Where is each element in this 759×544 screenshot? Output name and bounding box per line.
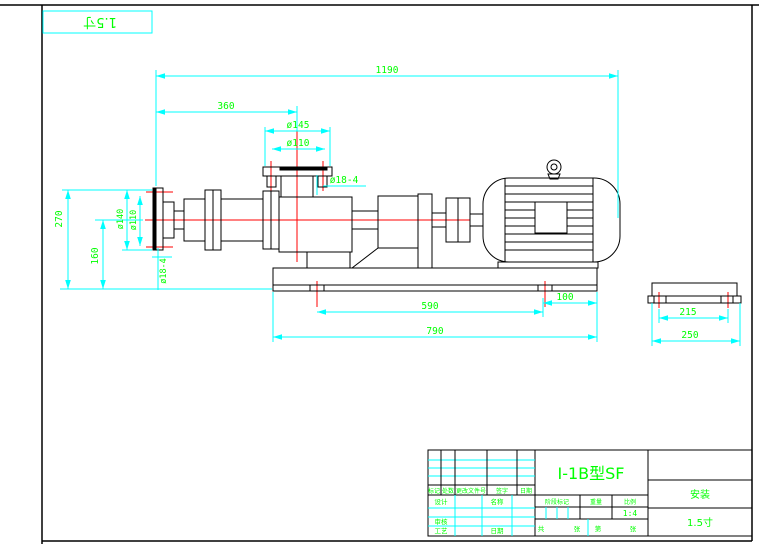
centerlines xyxy=(145,130,728,308)
base-end-view xyxy=(648,283,741,303)
label-design: 设计 xyxy=(435,497,449,506)
dim-anchor-bolt-span: 590 xyxy=(421,301,438,312)
motor-terminal-box xyxy=(535,202,567,233)
rev-header-mark: 标记 xyxy=(428,487,440,495)
bracket-support-plate xyxy=(418,194,432,268)
rev-header-count: 处数 xyxy=(442,487,454,495)
dim-axis-height: 160 xyxy=(90,247,101,264)
drawing-sheet: 1.5寸 xyxy=(0,0,759,544)
revision-table: 标记 处数 更改文件号 签字 日期 xyxy=(428,450,535,495)
dim-total-length: 1190 xyxy=(376,65,399,76)
corner-label: 1.5寸 xyxy=(83,14,117,29)
motor-eyebolt-icon xyxy=(547,160,561,179)
inlet-flange-face xyxy=(153,188,156,250)
label-pages: 张 xyxy=(630,524,637,533)
dim-anchor-bolt-width: 215 xyxy=(679,307,696,318)
dimension-lines xyxy=(60,70,740,346)
label-total: 共 xyxy=(538,524,545,533)
label-sheets: 张 xyxy=(574,524,581,533)
dim-base-overhang: 100 xyxy=(556,292,573,303)
dim-base-width: 250 xyxy=(681,330,698,341)
dim-outlet-flange-od: ø145 xyxy=(287,120,310,131)
title-right-column: 安装 1.5寸 xyxy=(648,480,752,529)
pump-casing xyxy=(279,197,352,252)
outlet-flange-face xyxy=(280,167,327,170)
dim-inlet-flange-od: ø140 xyxy=(116,209,126,229)
scale-value: 1:4 xyxy=(623,509,638,518)
gusset-rib xyxy=(352,248,378,268)
label-page: 第 xyxy=(595,524,602,533)
dim-inlet-bolt-circle: ø110 xyxy=(129,210,139,230)
endview-bolt-pads xyxy=(654,296,733,303)
title-block: 标记 处数 更改文件号 签字 日期 设计 名称 审核 工艺 日期 I-1B型SF xyxy=(428,450,752,536)
motor-foot xyxy=(498,262,598,268)
size-label: 1.5寸 xyxy=(687,516,713,529)
label-name: 名称 xyxy=(491,497,505,506)
baseplate-bolt-pads xyxy=(310,285,552,291)
scale-weight-area: 阶段标记 重量 比例 1:4 共 张 第 张 xyxy=(535,495,648,536)
dim-inlet-to-outlet: 360 xyxy=(217,101,234,112)
dim-outlet-bolt-circle: ø110 xyxy=(287,138,310,149)
drawing-name: I-1B型SF xyxy=(557,464,624,483)
label-date: 日期 xyxy=(491,527,505,535)
bearing-bracket xyxy=(378,196,418,248)
dim-base-length: 790 xyxy=(426,326,443,337)
rev-header-signature: 签字 xyxy=(496,487,508,495)
dimension-labels: 1190 360 ø145 ø110 ø18-4 270 160 ø140 ø1… xyxy=(54,65,699,341)
label-weight: 重量 xyxy=(590,498,602,506)
endview-plate xyxy=(652,283,737,296)
rev-header-date: 日期 xyxy=(520,487,532,495)
sheet-frame: 1.5寸 xyxy=(0,5,759,544)
sheet-title: 安装 xyxy=(690,488,710,501)
label-check: 审核 xyxy=(435,517,449,526)
signature-area: 设计 名称 审核 工艺 日期 xyxy=(428,495,535,536)
label-scale: 比例 xyxy=(624,498,636,506)
motor-shaft xyxy=(470,214,483,226)
cad-canvas: 1.5寸 xyxy=(0,0,759,544)
baseplate xyxy=(273,268,597,285)
casing-foot xyxy=(307,252,350,268)
dim-overall-height: 270 xyxy=(54,210,65,227)
pump-assembly-outline xyxy=(153,160,620,291)
endview-lip xyxy=(648,296,741,303)
label-stage: 阶段标记 xyxy=(545,498,569,506)
baseplate-lip xyxy=(273,285,597,291)
rev-header-docno: 更改文件号 xyxy=(456,487,486,495)
dim-inlet-bolt-holes: ø18-4 xyxy=(159,258,169,284)
label-process: 工艺 xyxy=(435,527,449,535)
dim-outlet-bolt-holes: ø18-4 xyxy=(330,175,359,186)
